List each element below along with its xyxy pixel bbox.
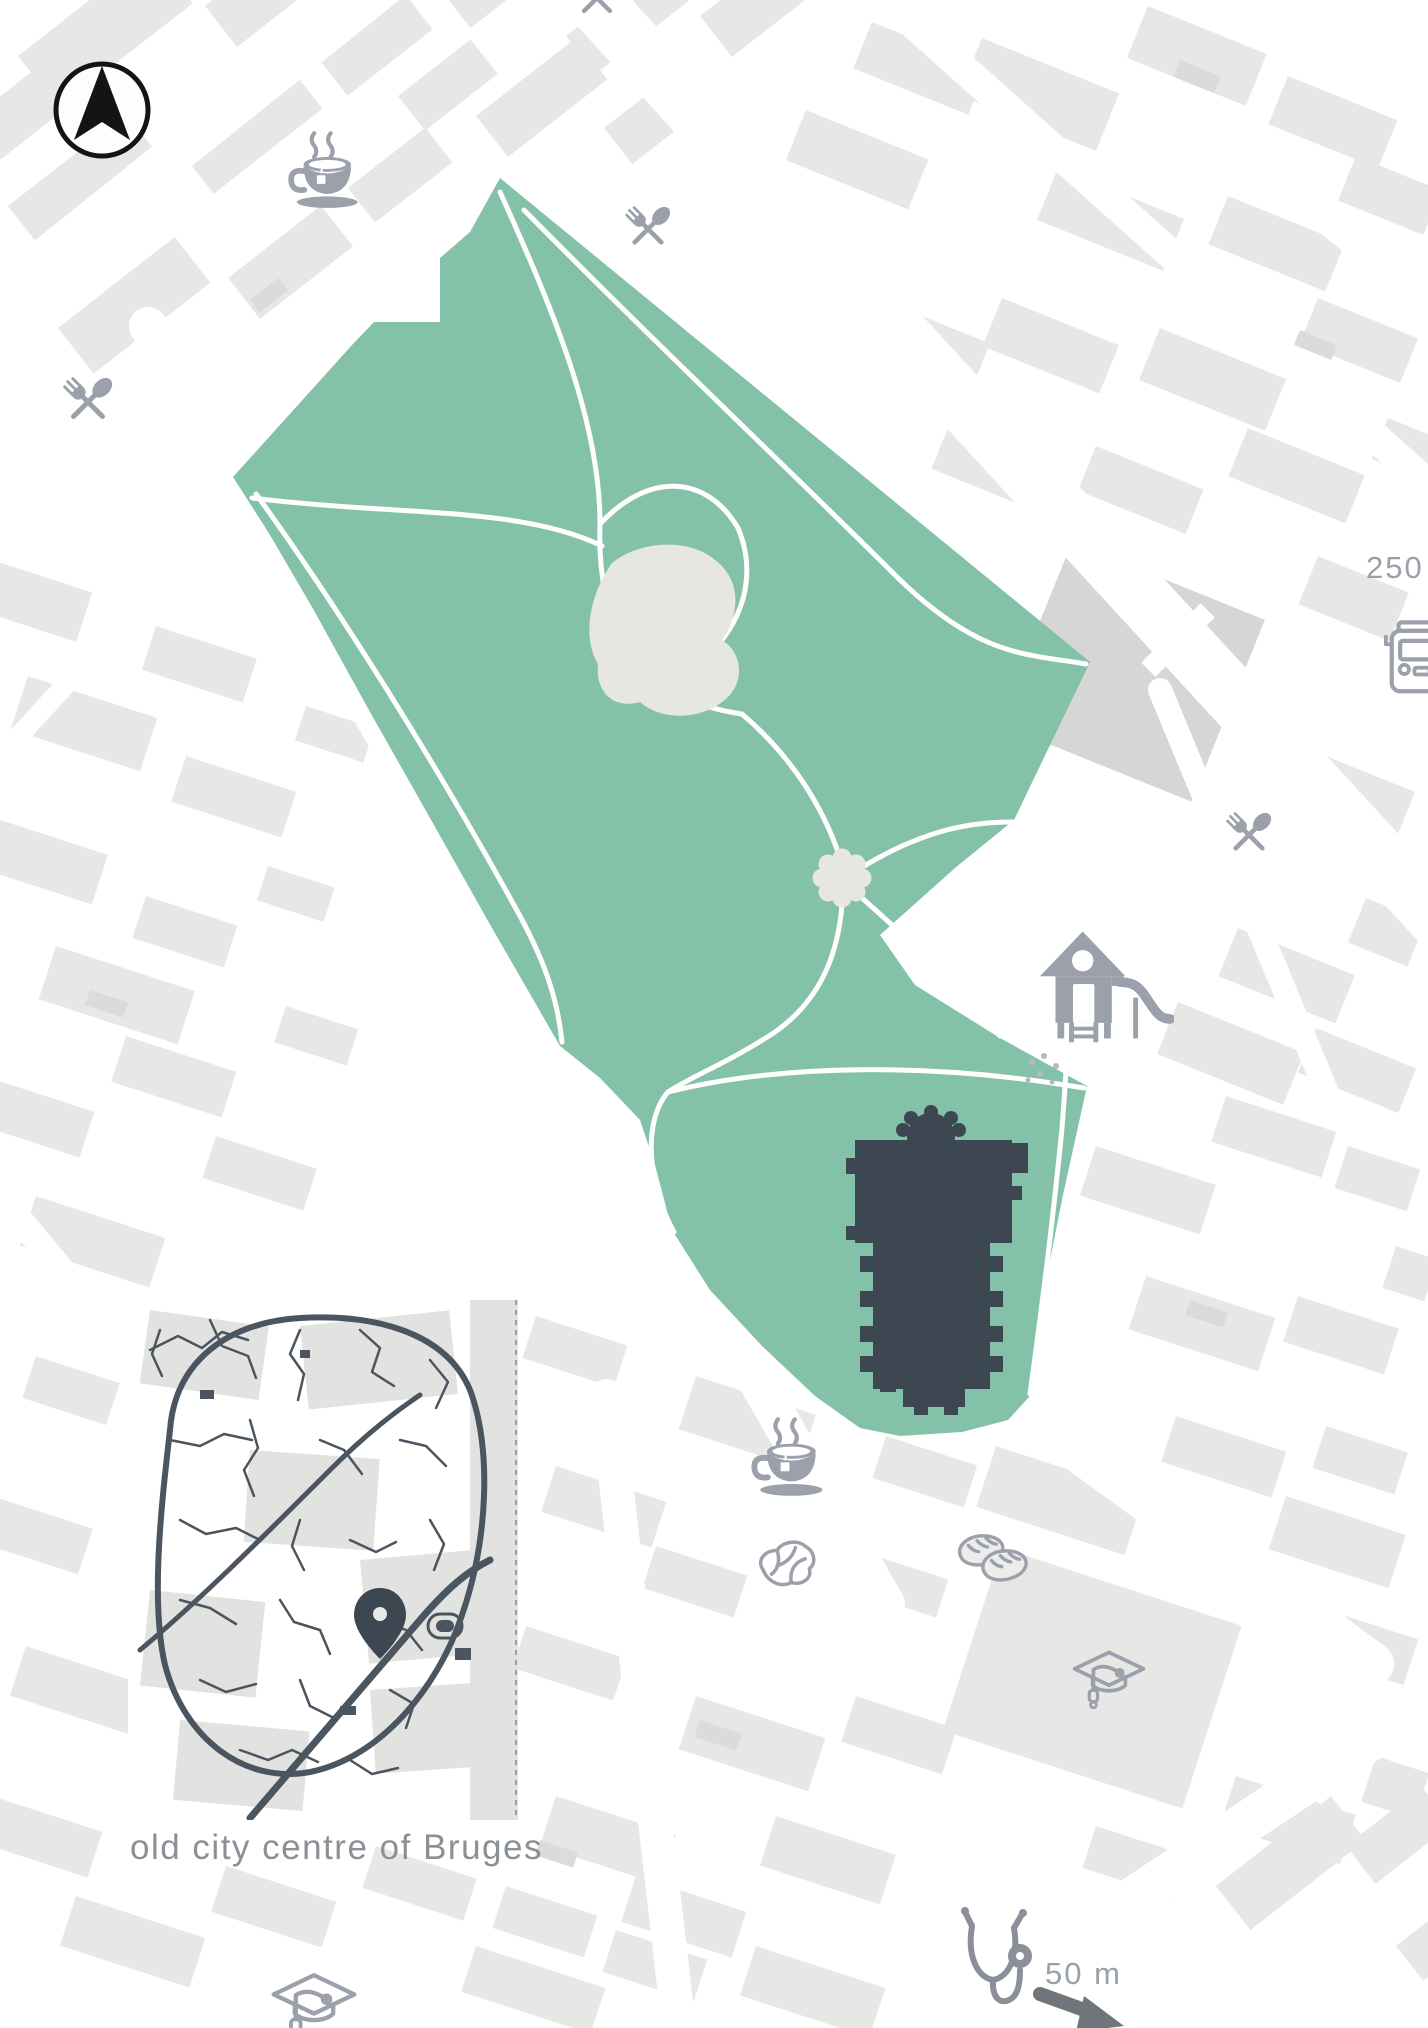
scale-arrow-icon <box>1040 1994 1124 2028</box>
bruges-park-map: 250 m 50 m old city centre of Bruges <box>0 0 1428 2028</box>
park-pond <box>589 545 739 716</box>
restaurant-icon-top <box>624 203 674 249</box>
tea-cup-icon-north <box>291 133 357 208</box>
playground-icon <box>1040 932 1170 1043</box>
bread-icon <box>960 1536 1026 1580</box>
steak-icon <box>761 1542 814 1584</box>
graduation-cap-icon-south <box>274 1975 355 2028</box>
scale-label-250m: 250 m <box>1366 550 1428 586</box>
map-graphics <box>0 0 1428 2028</box>
church-building <box>846 1105 1028 1415</box>
restaurant-icon-left <box>62 374 116 424</box>
inset-caption: old city centre of Bruges <box>130 1828 543 1868</box>
bus-icon <box>1386 622 1428 691</box>
scale-label-50m: 50 m <box>1045 1956 1122 1992</box>
compass-north-icon <box>56 64 148 156</box>
inset-map <box>128 1296 518 1820</box>
rosette-plaza <box>813 849 872 908</box>
